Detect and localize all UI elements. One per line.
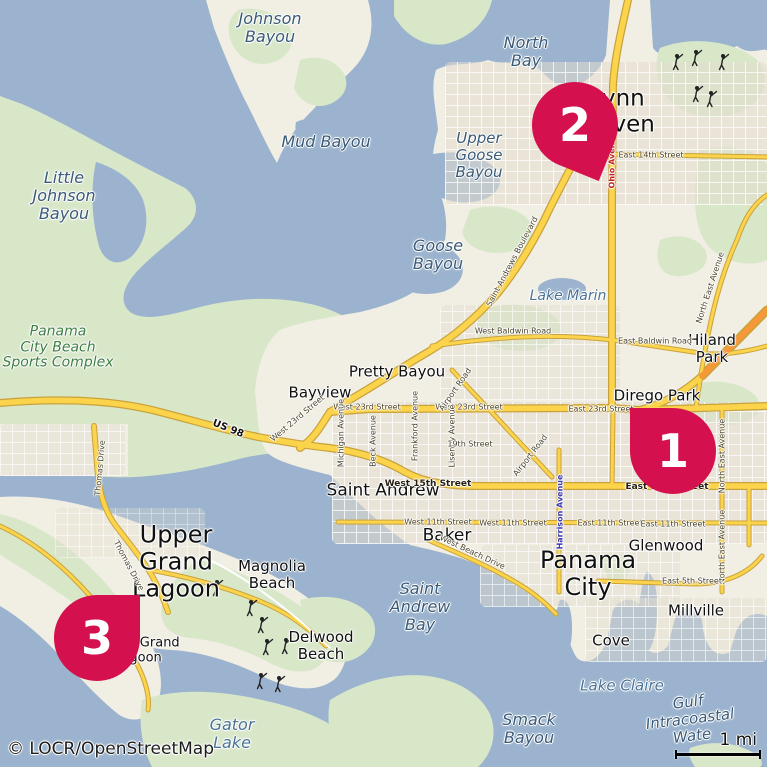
label-airport-road-2: Airport Road bbox=[512, 434, 550, 479]
label-sports-complex: Panama City Beach Sports Complex bbox=[3, 324, 114, 371]
label-saint-andrew: Saint Andrew bbox=[327, 481, 440, 500]
label-thomas-drive-1: Thomas Drive bbox=[94, 440, 108, 496]
scale-bar: 1 mi bbox=[675, 730, 761, 759]
scale-line bbox=[675, 750, 761, 759]
label-harrison-avenue: Harrison Avenue bbox=[557, 475, 566, 550]
label-saint-andrews-boulevard: Saint Andrews Boulevard bbox=[485, 216, 540, 309]
label-west-baldwin-road: West Baldwin Road bbox=[475, 328, 551, 337]
label-goose-bayou: Goose Bayou bbox=[413, 237, 463, 273]
label-east-14th-street: East 14th Street bbox=[618, 152, 683, 161]
label-mud-bayou: Mud Bayou bbox=[281, 133, 370, 151]
label-magnolia-beach: Magnolia Beach bbox=[238, 558, 306, 592]
label-hiland-park: Hiland Park bbox=[685, 332, 740, 366]
label-lake-claire: Lake Claire bbox=[580, 678, 664, 695]
label-smack-bayou: Smack Bayou bbox=[502, 711, 556, 747]
label-lake-marin: Lake Marin bbox=[530, 289, 607, 305]
label-west-23rd-street-diag: West 23rd Street bbox=[269, 394, 326, 444]
label-upper-goose-bayou: Upper Goose Bayou bbox=[455, 130, 502, 180]
label-north-east-avenue-3: North East Avenue bbox=[719, 510, 728, 584]
label-west-11th-street-2: West 11th Street bbox=[479, 520, 546, 529]
label-us-98: US 98 bbox=[211, 418, 246, 441]
marker-3-number: 3 bbox=[81, 611, 113, 665]
label-glenwood: Glenwood bbox=[629, 538, 704, 555]
label-bayview: Bayview bbox=[289, 385, 352, 402]
label-west-beach-drive: West Beach Drive bbox=[438, 534, 506, 572]
map-marker-3[interactable]: 3 bbox=[54, 595, 140, 681]
label-cove: Cove bbox=[592, 633, 630, 650]
map-canvas[interactable]: Johnson BayouLittle Johnson BayouMud Bay… bbox=[0, 0, 767, 767]
label-baker: Baker bbox=[423, 526, 472, 545]
map-attribution: © LOCR/OpenStreetMap bbox=[7, 739, 214, 759]
scale-label: 1 mi bbox=[675, 730, 761, 750]
label-thomas-drive-2: Thomas Drive bbox=[111, 539, 145, 592]
label-upper-grand-lagoon: Upper Grand Lagoon bbox=[132, 522, 220, 603]
label-johnson-bayou: Johnson Bayou bbox=[238, 10, 301, 46]
label-gator-lake: Gator Lake bbox=[210, 716, 255, 752]
label-east-baldwin-road: East Baldwin Road bbox=[618, 338, 692, 347]
label-airport-road-1: Airport Road bbox=[438, 367, 474, 413]
label-west-15th-street: West 15th Street bbox=[385, 479, 472, 489]
label-dirego-park: Dirego Park bbox=[614, 388, 701, 405]
label-east-11th-street-2: East 11th Street bbox=[640, 521, 705, 530]
label-michigan-avenue: Michigan Avenue bbox=[338, 399, 347, 467]
label-west-23rd-street-2: West 23rd Street bbox=[435, 404, 502, 413]
marker-1-number: 1 bbox=[657, 424, 689, 478]
label-north-east-avenue-1: North East Avenue bbox=[695, 251, 727, 325]
label-pretty-bayou: Pretty Bayou bbox=[349, 364, 445, 381]
label-north-bay: North Bay bbox=[504, 34, 549, 70]
label-beck-avenue: Beck Avenue bbox=[370, 415, 379, 467]
label-millville: Millville bbox=[668, 603, 724, 620]
label-lisenby-avenue: Lisenby Avenue bbox=[449, 405, 458, 468]
label-west-11th-street-1: West 11th Street bbox=[404, 519, 471, 528]
label-saint-andrew-bay: Saint Andrew Bay bbox=[390, 580, 451, 634]
label-west-23rd-street-1: West 23rd Street bbox=[333, 404, 400, 413]
label-delwood-beach: Delwood Beach bbox=[288, 629, 353, 663]
label-little-johnson-bayou: Little Johnson Bayou bbox=[32, 169, 95, 223]
label-north-east-avenue-2: North East Avenue bbox=[719, 419, 728, 493]
map-marker-1[interactable]: 1 bbox=[630, 408, 716, 494]
label-frankford-avenue: Frankford Avenue bbox=[412, 391, 421, 461]
label-east-23rd-street: East 23rd Street bbox=[568, 406, 633, 415]
marker-2-number: 2 bbox=[559, 98, 591, 152]
label-panama-city: Panama City bbox=[540, 547, 636, 601]
label-east-11th-street-1: East 11th Street bbox=[577, 520, 642, 529]
label-19th-street: 19th Street bbox=[447, 441, 492, 450]
label-east-5th-street: East 5th Street bbox=[662, 578, 722, 587]
